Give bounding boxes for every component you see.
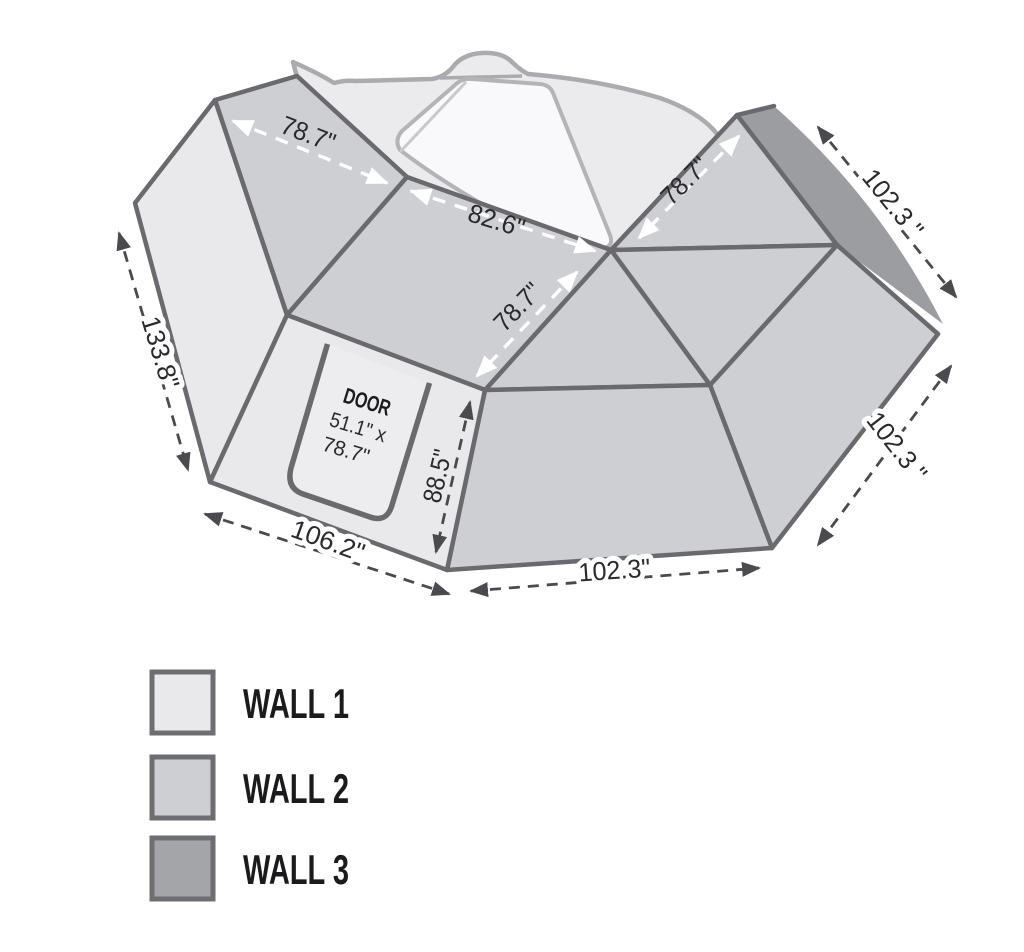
dimension-label: 102.3" [577, 553, 651, 588]
legend-swatch-wall1 [152, 672, 213, 733]
legend: WALL 1 WALL 2 WALL 3 [152, 672, 349, 899]
page: DOOR 51.1" x 78.7" 133.8" 106.2" 88.5" 1… [0, 0, 1024, 952]
legend-label-wall3: WALL 3 [243, 846, 349, 893]
awning-dimension-diagram: DOOR 51.1" x 78.7" 133.8" 106.2" 88.5" 1… [0, 0, 1024, 952]
legend-label-wall1: WALL 1 [243, 680, 349, 727]
legend-swatch-wall2 [152, 757, 213, 818]
legend-label-wall2: WALL 2 [243, 765, 349, 812]
legend-swatch-wall3 [152, 838, 213, 899]
